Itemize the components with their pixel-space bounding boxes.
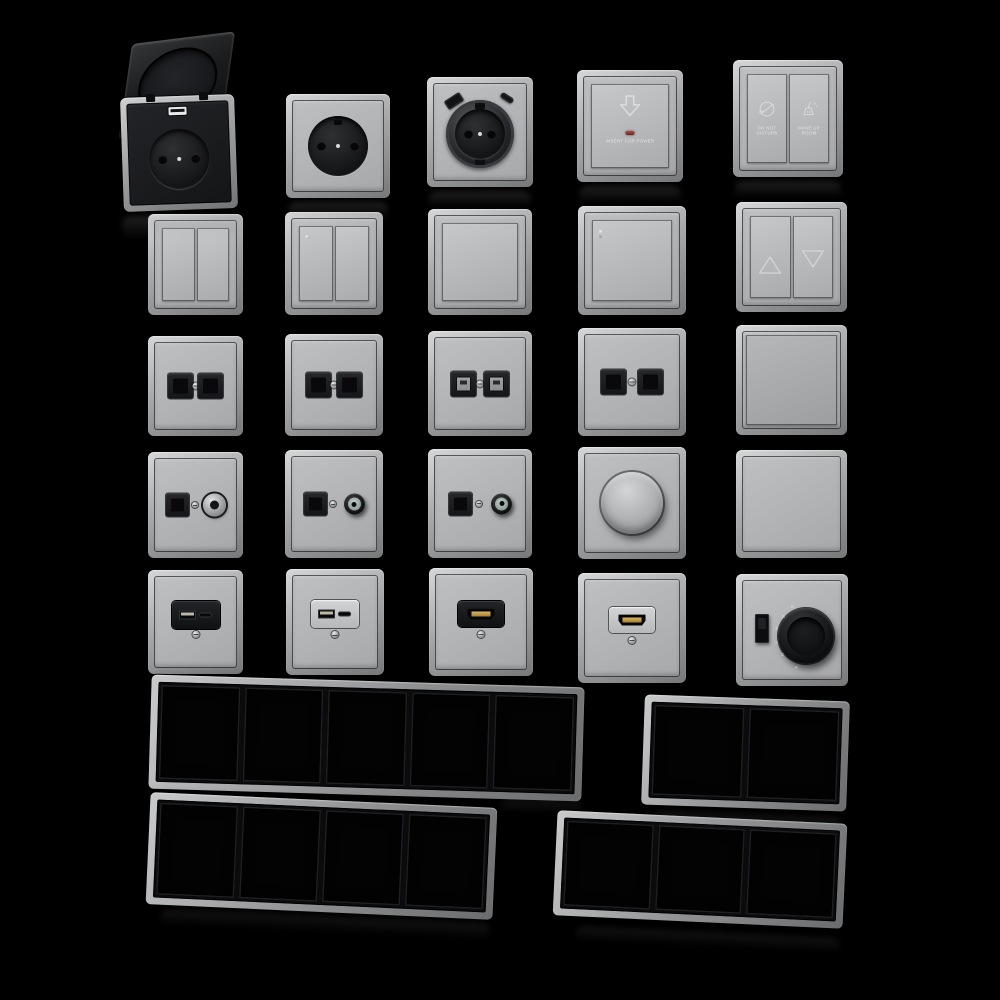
frame-window xyxy=(655,825,746,914)
usb-a-port xyxy=(168,107,186,116)
usb-c-port xyxy=(499,92,514,105)
blank-plate xyxy=(736,450,847,558)
jack-slot xyxy=(171,499,184,512)
pin-hole xyxy=(158,155,167,164)
broom-icon xyxy=(798,99,820,121)
switch-plate-face xyxy=(434,215,526,309)
triangle-down-icon xyxy=(799,247,827,270)
keycard-rocker: INSERT FOR POWER xyxy=(591,84,669,168)
frame-window xyxy=(651,705,744,798)
do-not-disturb-label: DO NOT DISTURB xyxy=(753,126,781,137)
keycard-power-switch: INSERT FOR POWER xyxy=(577,70,683,182)
triangle-up-icon xyxy=(756,254,784,277)
plate-face xyxy=(742,331,841,429)
jack-slot xyxy=(606,375,621,390)
coax-center-pin xyxy=(499,501,504,506)
center-screw xyxy=(177,157,181,161)
thermostat-knob xyxy=(778,608,834,664)
socket-plate-face xyxy=(434,455,526,552)
frame-window xyxy=(405,814,487,909)
hdmi-outlet-black xyxy=(429,568,533,676)
outlet-plate-face xyxy=(292,575,378,669)
jack-slot xyxy=(203,379,218,394)
pin-hole xyxy=(464,129,473,138)
center-screw xyxy=(476,501,482,507)
usb-a-port xyxy=(318,610,335,619)
socket-notch xyxy=(334,120,342,125)
frame-5-gang xyxy=(148,675,584,802)
dual-data-socket-b xyxy=(285,334,383,436)
outlet-plate-face xyxy=(435,574,527,670)
hinge-clip xyxy=(146,94,155,102)
scale-mark: 6 xyxy=(791,604,794,609)
frame-interior xyxy=(153,799,490,912)
frame-interior xyxy=(648,702,842,805)
hinge-clip xyxy=(199,92,208,100)
mounting-screw xyxy=(192,631,199,638)
frame-window xyxy=(239,806,321,901)
rocker-left xyxy=(299,226,333,301)
single-rocker-switch-indicator xyxy=(578,206,686,315)
frame-window xyxy=(242,687,323,783)
tv-data-socket-male-b xyxy=(428,449,532,558)
data-jack-right xyxy=(198,374,223,399)
jack-shutter xyxy=(489,376,504,391)
center-screw xyxy=(478,132,482,136)
socket-plate-face xyxy=(433,83,527,181)
dual-data-socket-c xyxy=(578,328,686,436)
render-stage: INSERT FOR POWER DO NOT DISTURB xyxy=(0,0,1000,1000)
data-jack-left xyxy=(601,370,626,395)
hdmi-port xyxy=(619,615,646,626)
coax-male-connector xyxy=(344,494,365,515)
center-screw xyxy=(330,501,336,507)
blank-plate-face xyxy=(742,456,841,552)
thermostat-dial: 6 5 4 3 2 ✳ xyxy=(736,574,848,686)
scale-bottom-mark: ✳ xyxy=(794,665,798,670)
socket-plate-face xyxy=(154,458,237,552)
hdmi-gold-contact xyxy=(623,618,642,623)
data-jack xyxy=(449,492,472,515)
frame-window xyxy=(563,821,654,910)
make-up-room-label: MAKE UP ROOM xyxy=(795,126,823,137)
hdmi-insert xyxy=(609,607,655,633)
jack-slot xyxy=(643,375,658,390)
frame-4-gang xyxy=(146,792,498,920)
schuko-recess xyxy=(148,128,210,190)
schuko-recess xyxy=(455,109,505,159)
coax-female-connector xyxy=(203,494,226,517)
center-screw xyxy=(629,379,636,386)
arrow-down-icon xyxy=(615,91,645,121)
frame-window xyxy=(156,803,238,898)
frame-window xyxy=(493,695,574,791)
scale-mark: 5 xyxy=(782,614,785,619)
hdmi-port xyxy=(468,609,495,620)
reflection xyxy=(288,202,388,222)
socket-plate-face xyxy=(434,337,526,430)
flip-lid-socket xyxy=(114,40,250,212)
dimmer-plate-face xyxy=(584,453,680,553)
mounting-screw xyxy=(332,631,339,638)
usb-c-port xyxy=(199,612,212,617)
switch-plate-face: INSERT FOR POWER xyxy=(583,76,677,176)
indicator-line xyxy=(599,230,602,238)
thermostat-slider xyxy=(755,614,769,643)
usb-charger-black xyxy=(148,570,243,674)
frame-window xyxy=(322,810,404,905)
switch-plate-face xyxy=(742,208,841,306)
pin-hole xyxy=(191,154,200,163)
reflection xyxy=(500,799,583,817)
reflection xyxy=(579,186,681,206)
schuko-recess xyxy=(308,116,368,176)
switch-plate-face xyxy=(584,212,680,309)
jack-slot xyxy=(309,498,322,511)
usb-charger-white xyxy=(286,569,384,675)
center-screw xyxy=(477,380,484,387)
schuko-socket-usb xyxy=(427,77,533,187)
reflection xyxy=(575,926,841,956)
double-rocker-switch-indicator xyxy=(285,212,383,315)
blind-control-switch xyxy=(736,202,847,312)
blind-up-rocker xyxy=(750,216,791,298)
scale-mark: 4 xyxy=(775,626,778,631)
jack-slot xyxy=(342,378,357,393)
data-jack-left xyxy=(168,374,193,399)
pin-hole xyxy=(350,142,359,151)
tv-data-socket-male-a xyxy=(285,450,383,558)
frame-window xyxy=(409,692,490,788)
data-jack-left xyxy=(451,371,476,396)
socket-plate-face xyxy=(292,100,384,192)
center-screw xyxy=(336,144,340,148)
data-jack-right xyxy=(638,370,663,395)
usb-c-port xyxy=(338,612,351,617)
no-disturb-icon xyxy=(756,99,778,121)
socket-face-black xyxy=(126,100,231,205)
socket-metal-ring xyxy=(446,100,514,168)
reflection xyxy=(429,191,531,211)
indicator-dot xyxy=(305,235,309,239)
jack-slot xyxy=(311,378,326,393)
pin-hole xyxy=(317,142,326,151)
socket-plate-face xyxy=(154,342,237,430)
pin-hole xyxy=(487,129,496,138)
frame-window xyxy=(746,708,839,801)
reflection xyxy=(735,181,841,201)
usb-charger-insert xyxy=(172,601,220,629)
blind-down-rocker xyxy=(793,216,834,298)
scale-mark: 3 xyxy=(775,640,778,645)
hdmi-insert xyxy=(458,601,504,627)
do-not-disturb-rocker: DO NOT DISTURB xyxy=(747,74,787,163)
dual-data-socket-shuttered xyxy=(428,331,532,436)
data-jack xyxy=(166,494,189,517)
dual-data-socket-a xyxy=(148,336,243,436)
schuko-socket xyxy=(286,94,390,198)
frame-interior xyxy=(156,682,578,794)
switch-plate-face: DO NOT DISTURB MAKE UP ROOM xyxy=(739,66,837,171)
jack-slot xyxy=(454,497,467,510)
outlet-plate-face xyxy=(154,576,237,668)
hdmi-outlet-white xyxy=(578,573,686,683)
rocker xyxy=(442,223,518,301)
flip-socket-base xyxy=(120,94,238,212)
frame-2-gang xyxy=(641,694,850,811)
status-led xyxy=(626,131,635,135)
dimmer-knob xyxy=(601,472,663,534)
switch-plate-face xyxy=(291,218,377,309)
mounting-screw xyxy=(478,631,485,638)
single-rocker-switch xyxy=(428,209,532,315)
blank-module-plate xyxy=(736,325,847,435)
hotel-service-switch: DO NOT DISTURB MAKE UP ROOM xyxy=(733,60,843,177)
rotary-dimmer xyxy=(578,447,686,559)
full-face-button xyxy=(746,335,837,425)
rocker-right xyxy=(335,226,369,301)
frame-window xyxy=(159,685,240,781)
socket-plate-face xyxy=(291,340,377,430)
reflection xyxy=(122,216,242,244)
make-up-room-rocker: MAKE UP ROOM xyxy=(789,74,829,163)
outlet-plate-face xyxy=(584,579,680,677)
rocker xyxy=(592,220,672,301)
frame-window xyxy=(326,690,407,786)
data-jack-right xyxy=(337,373,362,398)
usb-charger-insert xyxy=(311,600,359,628)
tv-data-socket-female xyxy=(148,452,243,558)
scale-mark: 2 xyxy=(781,652,784,657)
coax-male-connector xyxy=(491,493,512,514)
keycard-label: INSERT FOR POWER xyxy=(596,139,663,144)
center-screw xyxy=(192,502,198,508)
mounting-screw xyxy=(629,637,636,644)
socket-plate-face xyxy=(291,456,377,552)
claw-tab xyxy=(475,159,485,165)
thermostat-plate-face: 6 5 4 3 2 ✳ xyxy=(742,580,842,680)
data-jack-right xyxy=(484,371,509,396)
socket-plate-face xyxy=(584,334,680,430)
hdmi-gold-contact xyxy=(472,612,491,617)
jack-shutter xyxy=(456,376,471,391)
frame-window xyxy=(746,829,837,918)
data-jack-left xyxy=(306,373,331,398)
jack-slot xyxy=(173,379,188,394)
usb-a-port xyxy=(179,610,196,619)
data-jack xyxy=(304,493,327,516)
coax-center-pin xyxy=(352,502,357,507)
